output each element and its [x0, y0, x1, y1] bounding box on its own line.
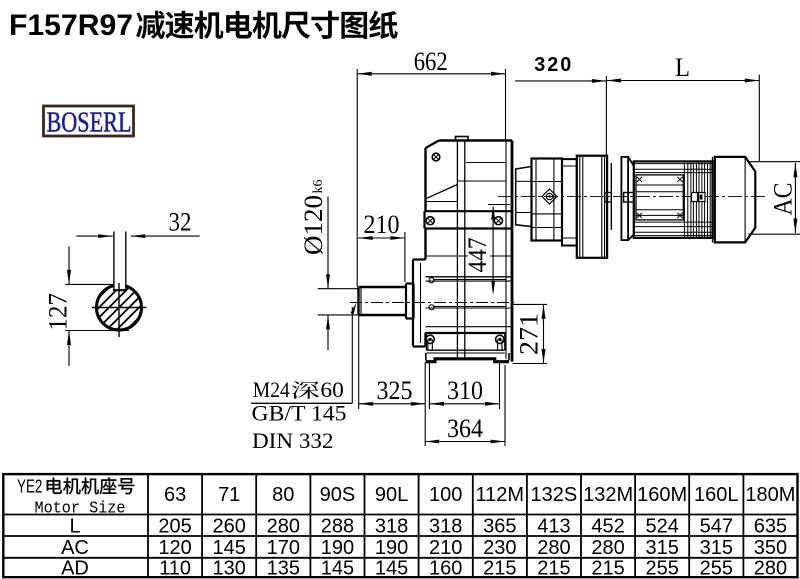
svg-text:132M: 132M	[583, 484, 633, 506]
svg-text:63: 63	[164, 484, 186, 506]
svg-text:112M: 112M	[476, 484, 525, 506]
svg-text:L: L	[675, 53, 690, 82]
svg-text:80: 80	[272, 484, 294, 506]
svg-text:280: 280	[267, 515, 300, 537]
svg-text:180M: 180M	[745, 484, 795, 506]
svg-text:170: 170	[267, 537, 300, 559]
svg-text:Ø120: Ø120	[299, 195, 328, 255]
svg-text:M24: M24	[253, 377, 290, 402]
svg-text:215: 215	[591, 557, 624, 579]
svg-text:215: 215	[483, 557, 516, 579]
svg-text:260: 260	[213, 515, 246, 537]
svg-text:547: 547	[700, 515, 733, 537]
svg-text:210: 210	[364, 210, 400, 239]
svg-text:100: 100	[429, 484, 462, 506]
svg-text:315: 315	[700, 537, 733, 559]
svg-text:BOSERL: BOSERL	[47, 108, 132, 139]
svg-text:F157R97: F157R97	[9, 9, 133, 42]
svg-text:288: 288	[321, 515, 354, 537]
svg-text:452: 452	[591, 515, 624, 537]
svg-text:318: 318	[429, 515, 462, 537]
svg-text:90S: 90S	[320, 484, 356, 506]
svg-text:210: 210	[429, 537, 462, 559]
svg-text:205: 205	[158, 515, 191, 537]
svg-text:AD: AD	[61, 557, 89, 579]
svg-text:318: 318	[375, 515, 408, 537]
svg-text:325: 325	[377, 376, 413, 405]
svg-text:AC: AC	[769, 183, 798, 216]
svg-text:AC: AC	[61, 537, 89, 559]
svg-text:DIN 332: DIN 332	[252, 428, 334, 453]
svg-text:635: 635	[754, 515, 787, 537]
svg-text:364: 364	[447, 414, 483, 443]
svg-text:145: 145	[375, 557, 408, 579]
svg-text:32: 32	[169, 208, 192, 237]
svg-text:71: 71	[218, 484, 240, 506]
svg-text:271: 271	[515, 313, 544, 355]
svg-text:127: 127	[44, 293, 73, 331]
svg-text:L: L	[69, 515, 80, 537]
svg-text:320: 320	[534, 54, 573, 76]
svg-text:365: 365	[483, 515, 516, 537]
svg-text:132S: 132S	[531, 484, 578, 506]
svg-text:110: 110	[159, 557, 191, 579]
svg-text:310: 310	[447, 376, 483, 405]
svg-text:215: 215	[537, 557, 570, 579]
svg-text:255: 255	[646, 557, 679, 579]
svg-text:145: 145	[321, 557, 354, 579]
svg-text:90L: 90L	[375, 484, 408, 506]
svg-text:350: 350	[754, 537, 787, 559]
svg-text:k6: k6	[311, 180, 326, 194]
svg-text:662: 662	[414, 47, 448, 76]
svg-text:230: 230	[483, 537, 516, 559]
svg-text:135: 135	[267, 557, 300, 579]
svg-text:160: 160	[429, 557, 462, 579]
svg-text:190: 190	[375, 537, 408, 559]
svg-text:145: 145	[213, 537, 246, 559]
svg-text:524: 524	[646, 515, 679, 537]
svg-text:413: 413	[537, 515, 570, 537]
svg-text:60: 60	[320, 377, 344, 402]
svg-text:160M: 160M	[637, 484, 687, 506]
svg-text:315: 315	[646, 537, 679, 559]
svg-text:447: 447	[463, 238, 492, 273]
svg-text:GB/T 145: GB/T 145	[252, 401, 347, 426]
svg-text:120: 120	[158, 537, 191, 559]
svg-text:130: 130	[213, 557, 246, 579]
svg-text:160L: 160L	[694, 484, 739, 506]
svg-text:280: 280	[754, 557, 787, 579]
svg-text:255: 255	[700, 557, 733, 579]
svg-text:280: 280	[591, 537, 624, 559]
svg-text:190: 190	[321, 537, 354, 559]
svg-text:YE2: YE2	[17, 477, 42, 497]
svg-text:280: 280	[537, 537, 570, 559]
